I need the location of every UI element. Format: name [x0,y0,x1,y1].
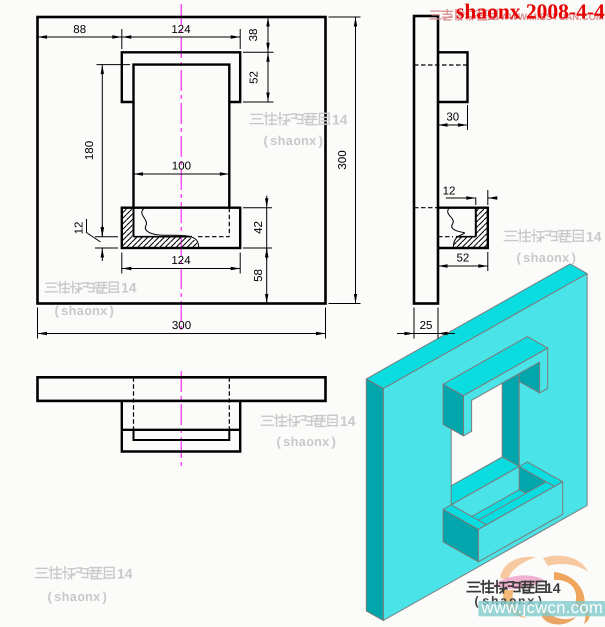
svg-text:88: 88 [73,24,86,36]
svg-text:(shaonx): (shaonx) [53,304,115,319]
svg-text:52: 52 [249,71,261,84]
svg-text:42: 42 [253,221,265,234]
svg-text:300: 300 [337,150,349,169]
svg-text:30: 30 [446,112,459,124]
svg-text:124: 124 [171,24,191,36]
svg-text:(shaonx): (shaonx) [515,251,577,266]
svg-text:(shaonx): (shaonx) [275,435,337,450]
svg-text:shaonx 2008-4-4: shaonx 2008-4-4 [456,0,605,24]
svg-text:180: 180 [84,141,96,160]
svg-text:www.jcwcn.com: www.jcwcn.com [481,599,604,617]
svg-text:300: 300 [172,320,191,332]
svg-text:58: 58 [253,269,265,282]
svg-text:14: 14 [586,228,602,244]
svg-text:12: 12 [443,186,456,198]
svg-text:52: 52 [457,253,470,265]
svg-text:12: 12 [74,222,86,235]
svg-text:38: 38 [248,29,260,42]
svg-text:14: 14 [545,580,561,596]
svg-text:25: 25 [420,320,433,332]
svg-text:14: 14 [340,413,356,429]
svg-text:14: 14 [117,565,133,581]
svg-text:(shaonx): (shaonx) [46,590,108,605]
svg-text:14: 14 [332,111,348,127]
svg-text:(shaonx): (shaonx) [262,134,324,149]
svg-text:14: 14 [121,280,137,296]
svg-text:100: 100 [172,161,191,173]
svg-text:124: 124 [171,255,191,267]
